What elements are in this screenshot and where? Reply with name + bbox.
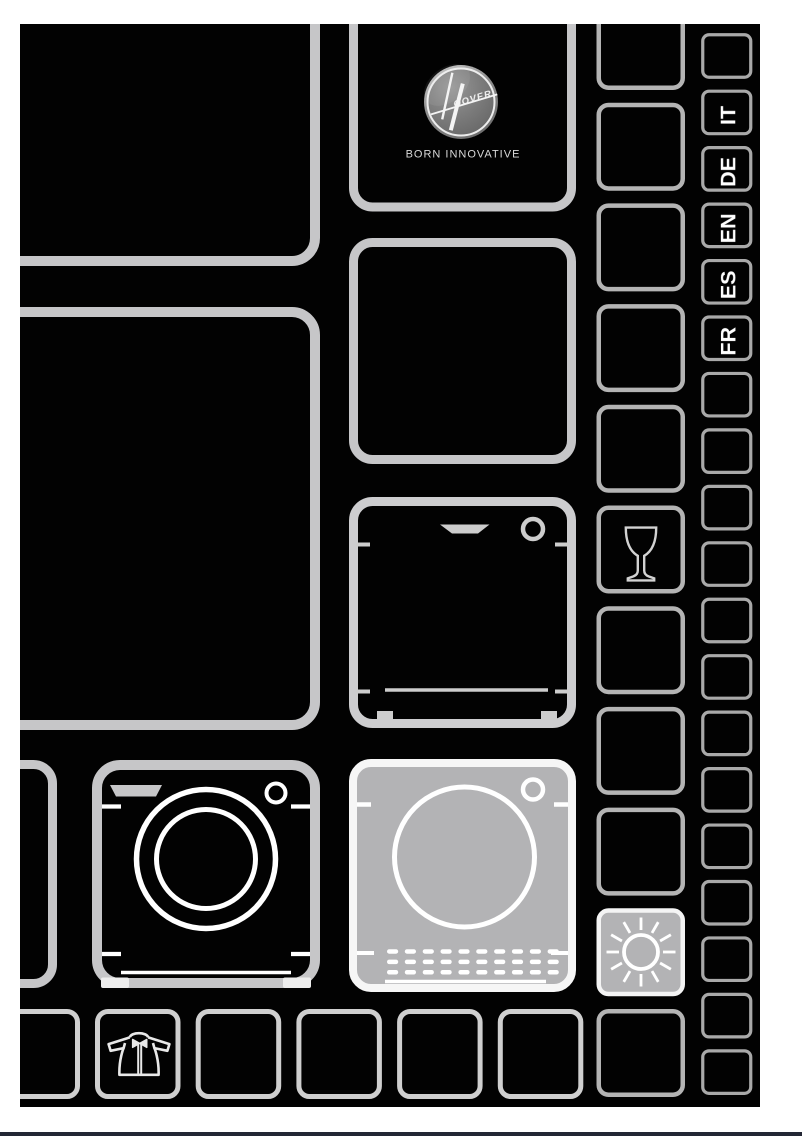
svg-text:BORN INNOVATIVE: BORN INNOVATIVE (406, 149, 521, 161)
svg-text:DE: DE (716, 157, 740, 187)
svg-text:IT: IT (716, 106, 740, 125)
svg-text:EN: EN (716, 213, 740, 243)
svg-text:ES: ES (716, 270, 740, 299)
svg-text:FR: FR (716, 326, 740, 355)
